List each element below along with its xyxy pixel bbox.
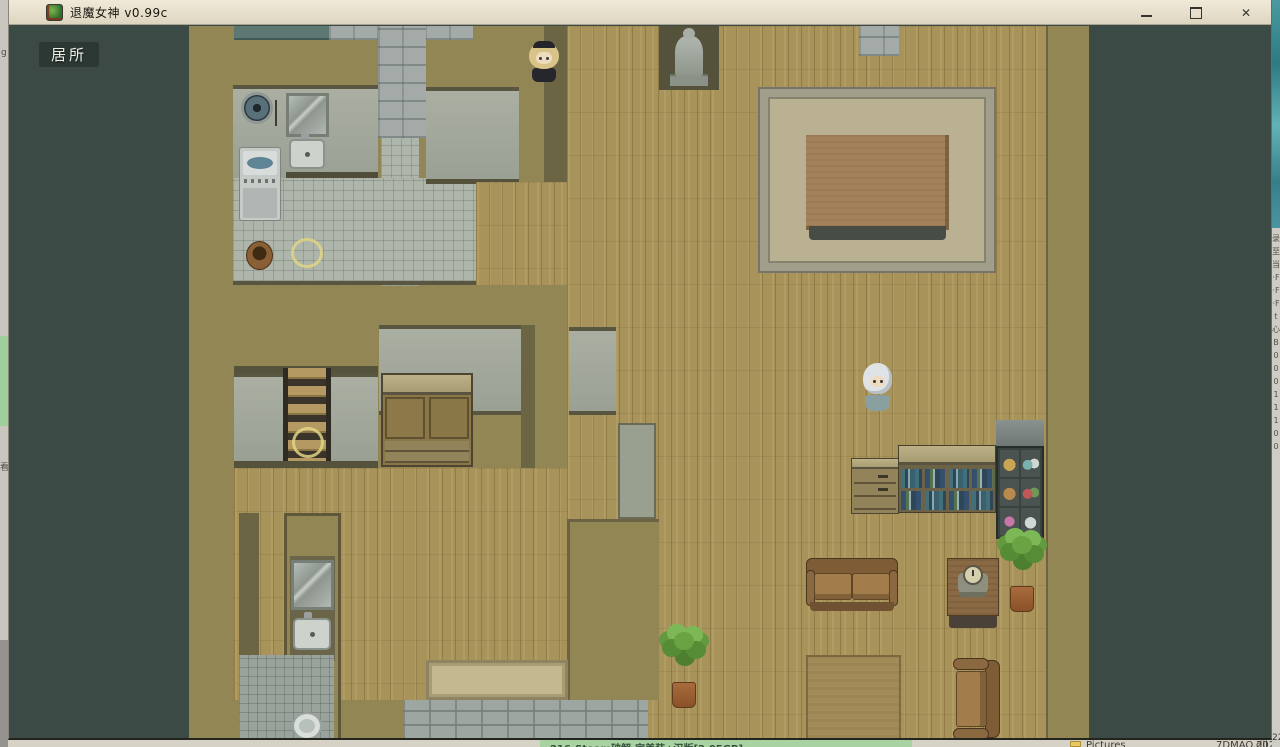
bookshelf-top xyxy=(899,446,995,465)
entry-wall xyxy=(567,519,659,700)
window-controls: ✕ xyxy=(1133,0,1259,25)
kitchen-counter-top xyxy=(234,26,329,40)
wardrobe-door-left xyxy=(385,397,425,439)
left-edge-lower-block xyxy=(0,640,8,747)
sofa-base xyxy=(810,602,894,611)
right-edge-image-thumbnail xyxy=(1272,0,1280,228)
vanity-mirror xyxy=(291,560,334,610)
book-row xyxy=(925,469,946,488)
washing-machine xyxy=(239,147,281,221)
book-row xyxy=(972,469,993,488)
clock-foot xyxy=(960,592,986,597)
doormat xyxy=(426,660,568,700)
plant-foliage xyxy=(674,632,694,650)
mid-wall-shadow xyxy=(521,325,535,469)
player-eye-right xyxy=(880,380,883,383)
cabinet-item-gold xyxy=(1000,450,1019,477)
mantel-clock xyxy=(958,565,988,598)
left-edge-text-fragment: g xyxy=(1,48,7,58)
statue-alcove xyxy=(659,26,719,90)
sofa xyxy=(806,558,898,614)
vanity-sink xyxy=(293,618,331,650)
minimize-button[interactable] xyxy=(1133,3,1159,22)
armchair-arm-bottom xyxy=(953,728,989,738)
background-archive-window-title[interactable]: 216-Steam破解-完美装+汉版[2.05GB] xyxy=(540,740,912,747)
potted-plant-center xyxy=(659,612,707,712)
drawer-handle-2 xyxy=(878,488,888,491)
player-eye-left xyxy=(873,380,876,383)
cabinet-item-potions xyxy=(1021,479,1040,506)
game-window: 退魔女神 v0.99c ✕ xyxy=(8,0,1272,740)
potted-plant-right xyxy=(998,518,1044,616)
interaction-marker-bathroom[interactable] xyxy=(291,238,323,268)
book-row xyxy=(949,491,970,510)
clock-table-base xyxy=(949,616,997,628)
right-edge-text-fragments: 录 至 当 ·F ·F ·F t 心 B 0 0 0 1 1 1 0 0 xyxy=(1272,232,1280,453)
entrance-pavement xyxy=(403,700,648,738)
background-taskbar-strip: 216-Steam破解-完美装+汉版[2.05GB] Pictures 7DMA… xyxy=(8,740,1272,747)
close-icon: ✕ xyxy=(1241,6,1251,20)
interaction-marker-closet[interactable] xyxy=(292,427,324,458)
low-table xyxy=(806,135,949,230)
book-row xyxy=(949,469,970,488)
right-wall xyxy=(1046,26,1089,738)
book-row xyxy=(972,491,993,510)
pictures-label[interactable]: Pictures xyxy=(1086,740,1126,747)
sink-drain xyxy=(305,152,310,157)
hall-wall-panel-right xyxy=(569,327,616,415)
statue-head xyxy=(683,28,695,39)
maximize-icon xyxy=(1190,7,1202,19)
closet-wall-left xyxy=(234,373,283,461)
background-window-right-edge[interactable]: 录 至 当 ·F ·F ·F t 心 B 0 0 0 1 1 1 0 0 22 xyxy=(1272,0,1280,747)
stone-path xyxy=(378,26,426,138)
drawer-rows xyxy=(854,471,896,511)
minimize-icon xyxy=(1141,15,1152,17)
closet-wall-right xyxy=(331,373,378,461)
display-cabinet-top xyxy=(996,420,1044,446)
maximize-button[interactable] xyxy=(1183,3,1209,22)
npc-dress xyxy=(532,68,556,82)
year-fragment: 2022.0 xyxy=(1256,740,1272,747)
game-client-area: 居所 xyxy=(9,25,1271,738)
npc-eye-right xyxy=(546,57,549,60)
sofa-arm-right xyxy=(889,570,898,606)
bookshelf xyxy=(898,445,996,513)
book-row xyxy=(901,491,922,510)
book-row xyxy=(901,469,922,488)
armchair xyxy=(949,658,1001,738)
sofa-cushion-right xyxy=(852,573,890,600)
drawer-chest xyxy=(851,458,899,514)
npc-character[interactable] xyxy=(529,40,559,84)
wooden-bucket xyxy=(246,241,273,270)
clock-hand xyxy=(972,570,974,576)
wardrobe-door-right xyxy=(429,397,469,439)
bathroom-sink xyxy=(289,139,325,169)
bedroom-wall xyxy=(426,87,519,184)
player-character[interactable] xyxy=(861,363,894,415)
bedroom-wood-floor xyxy=(476,182,567,285)
left-edge-green-highlight xyxy=(0,336,8,426)
drawer-handle xyxy=(878,475,888,478)
wardrobe xyxy=(381,373,473,467)
washer-water xyxy=(247,157,273,169)
fan-cord xyxy=(275,100,277,126)
archive-title-text: 216-Steam破解-完美装+汉版[2.05GB] xyxy=(550,740,743,747)
bookshelf-cubbies xyxy=(899,467,995,512)
folder-icon xyxy=(1070,741,1081,747)
clock-table xyxy=(947,558,999,632)
wardrobe-top xyxy=(383,375,471,395)
location-label: 居所 xyxy=(39,42,99,67)
toilet-bowl xyxy=(299,719,315,733)
armchair-back xyxy=(985,660,1000,738)
wardrobe-drawers xyxy=(385,441,469,463)
closet-bottom-edge xyxy=(234,461,378,468)
right-edge-bottom-fragment: 22 xyxy=(1272,733,1280,743)
bathroom-mirror xyxy=(286,93,329,137)
low-table-base xyxy=(809,226,946,240)
toilet xyxy=(292,712,322,738)
window-titlebar[interactable]: 退魔女神 v0.99c ✕ xyxy=(9,0,1271,25)
ventilation-fan-icon xyxy=(241,92,273,124)
plant-foliage xyxy=(1012,536,1032,554)
stone-statue xyxy=(675,36,703,76)
background-window-left-edge[interactable]: g 看 xyxy=(0,0,8,747)
vanity-sink-drain xyxy=(310,632,315,637)
armchair-seat xyxy=(956,671,987,727)
washer-body-panel xyxy=(243,188,277,218)
app-icon[interactable] xyxy=(46,4,63,21)
plant-pot xyxy=(1010,586,1034,612)
game-viewport[interactable] xyxy=(189,26,1089,738)
armchair-arm-top xyxy=(953,658,989,670)
washer-controls xyxy=(244,179,276,183)
cabinet-item-bottles xyxy=(1021,450,1040,477)
close-button[interactable]: ✕ xyxy=(1233,3,1259,22)
npc-headband xyxy=(533,41,555,48)
toilet-wall-shadow xyxy=(239,513,259,655)
plant-pot xyxy=(672,682,696,708)
screen: g 看 录 至 当 ·F ·F ·F t 心 B 0 0 0 1 1 1 0 0… xyxy=(0,0,1280,747)
hall-panel-small xyxy=(618,423,656,519)
player-robe xyxy=(865,395,890,411)
npc-eye-left xyxy=(539,57,542,60)
drawer-chest-top xyxy=(852,459,898,469)
upper-tile-patch xyxy=(859,26,899,56)
book-row xyxy=(925,491,946,510)
left-edge-text-fragment-2: 看 xyxy=(0,460,8,473)
floor-rug-brown xyxy=(806,655,901,738)
sofa-cushion-left xyxy=(814,573,852,600)
window-title: 退魔女神 v0.99c xyxy=(70,4,168,21)
cabinet-item-food xyxy=(1000,479,1019,506)
